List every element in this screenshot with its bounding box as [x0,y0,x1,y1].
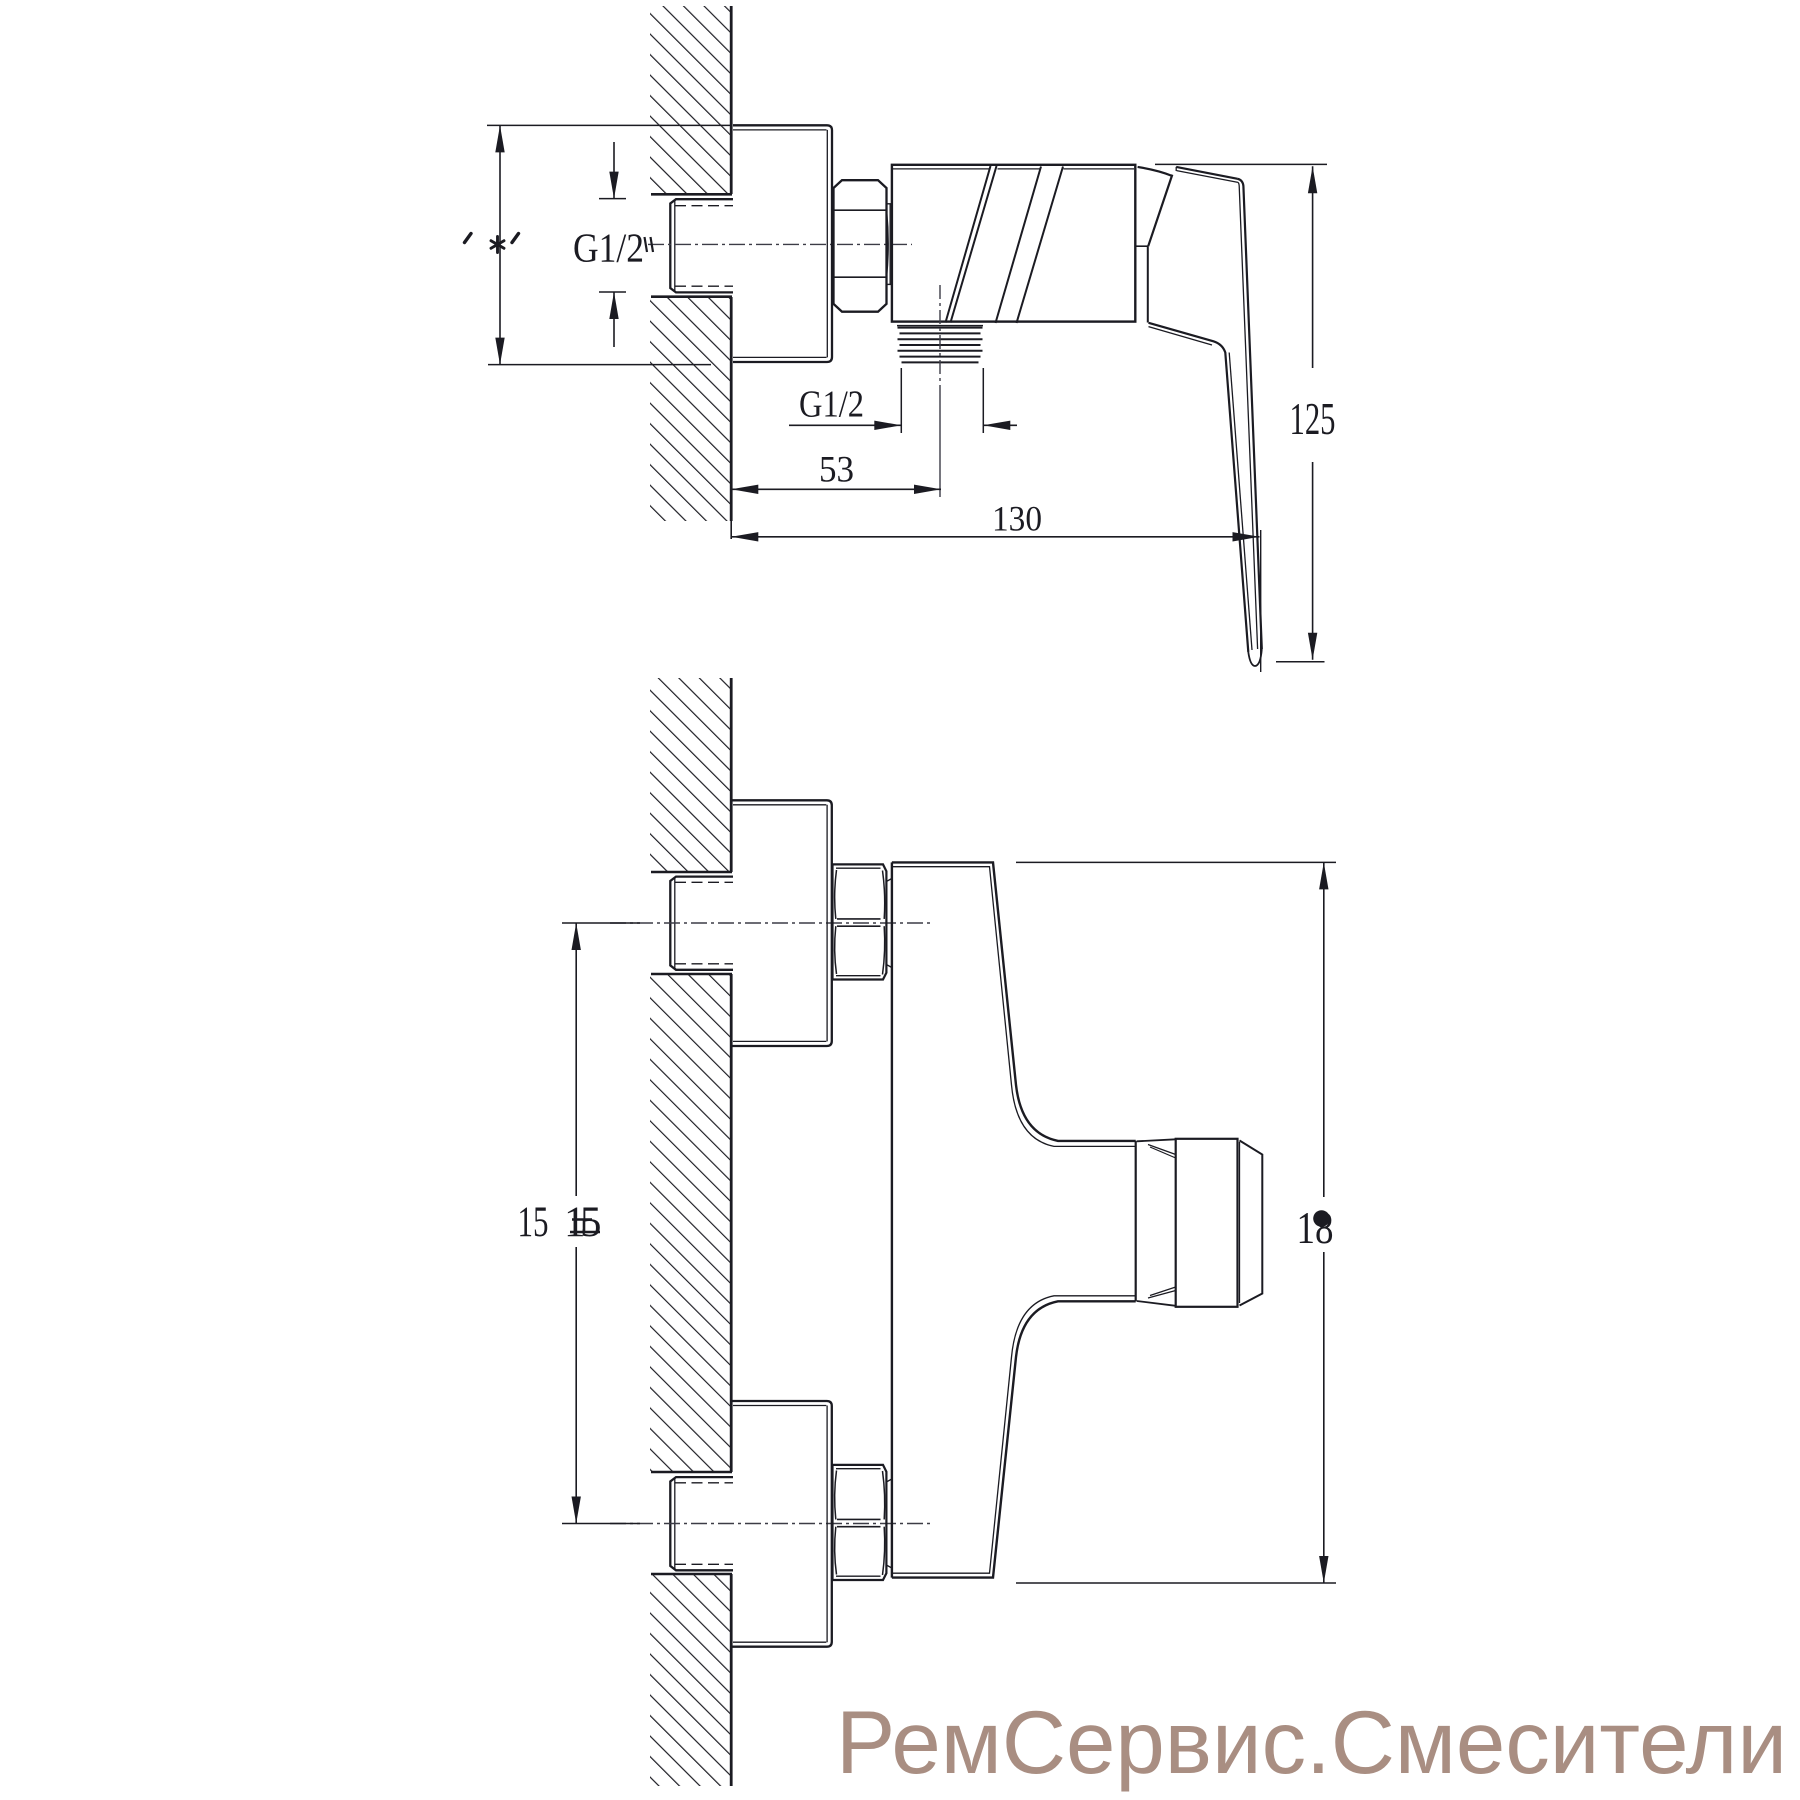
svg-text:18: 18 [1297,1202,1334,1253]
svg-text:РемСервис.Смесители: РемСервис.Смесители [836,1692,1787,1792]
svg-text:15: 15 [518,1199,549,1246]
svg-text:125: 125 [1290,393,1336,444]
svg-text:53: 53 [819,450,854,491]
svg-text:130: 130 [992,499,1042,539]
svg-text:G1/2: G1/2 [799,384,864,426]
svg-text:G1/2: G1/2 [573,225,644,271]
